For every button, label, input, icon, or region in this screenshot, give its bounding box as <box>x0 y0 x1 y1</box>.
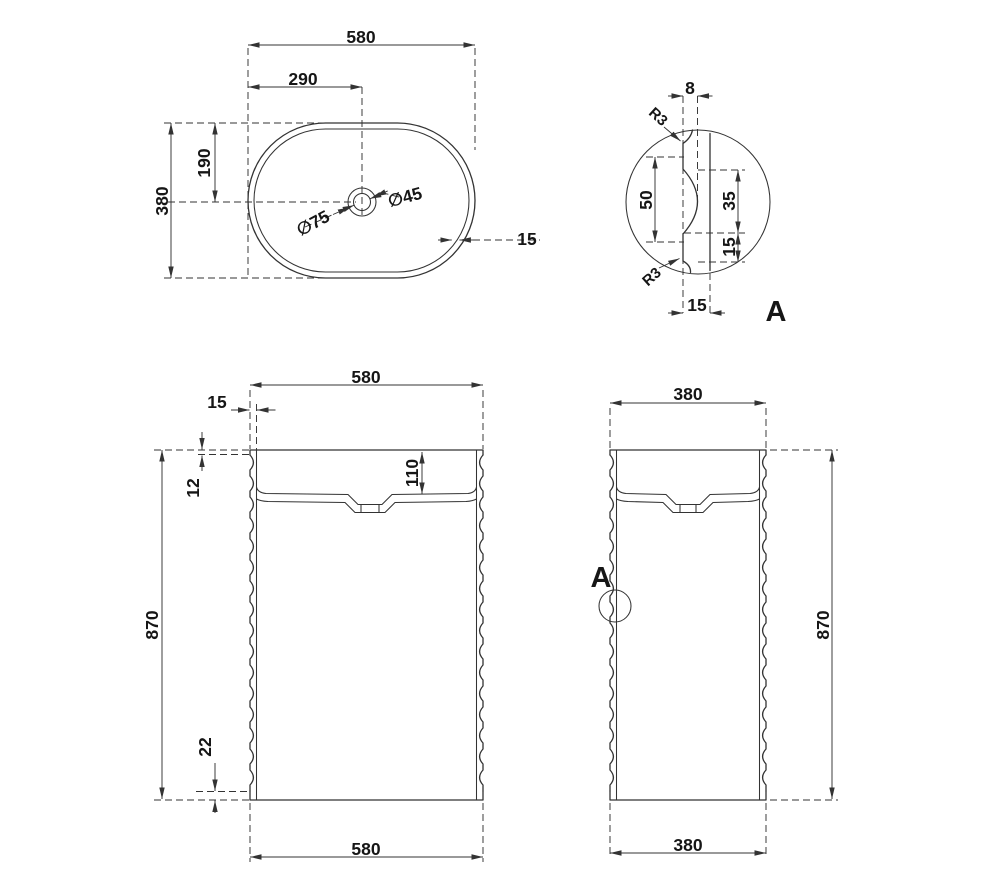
front-drain-socket <box>361 505 379 513</box>
front-basin-depth-dim: 110 <box>402 459 422 487</box>
detail-fillet-top-dim: R3 <box>645 104 671 129</box>
side-detail-marker-label: A <box>591 562 612 594</box>
side-body-outline <box>610 450 766 800</box>
top-view-depth-dim: 380 <box>152 186 172 215</box>
detail-title-label: A <box>766 296 787 328</box>
fillet-top-leader <box>664 127 681 141</box>
front-width-top-dim: 580 <box>351 367 380 387</box>
detail-groove-depth-dim: 8 <box>685 78 695 98</box>
front-basin-shell <box>257 499 477 513</box>
side-extension-lines <box>610 408 838 858</box>
front-view: 580 15 12 110 870 22 580 <box>142 367 483 862</box>
detail-a-view: 8 R3 R3 50 35 15 15 A <box>626 78 787 328</box>
side-depth-bottom-dim: 380 <box>673 835 702 855</box>
top-view-width-dim: 580 <box>346 27 375 47</box>
detail-groove-height-dim: 35 <box>719 191 739 211</box>
front-right-fluted-edge <box>480 455 483 791</box>
side-basin-shell <box>617 499 760 513</box>
top-view-hole-y-dim: 190 <box>194 148 214 177</box>
technical-drawing-canvas: 580 290 380 190 15 ∅75 ∅45 8 R3 R3 50 35… <box>0 0 1000 894</box>
drain-inner-arrow-left <box>340 205 354 211</box>
drain-inner-arrow-right <box>370 193 384 199</box>
top-view-inner-edge <box>254 129 469 272</box>
front-left-fluted-edge <box>250 455 253 791</box>
front-inner-edge-lines <box>257 450 477 800</box>
side-detail-marker-circle <box>599 590 631 622</box>
front-wall-dim: 15 <box>207 392 227 412</box>
front-height-dim: 870 <box>142 610 162 639</box>
front-base-clearance-dim: 22 <box>195 737 215 757</box>
side-inner-edge-lines <box>617 450 760 800</box>
detail-groove-pitch-dim: 50 <box>636 190 656 210</box>
detail-wall-thickness-dim: 15 <box>687 295 707 315</box>
top-view-hole-x-dim: 290 <box>288 69 317 89</box>
detail-fillet-bottom-dim: R3 <box>639 264 665 289</box>
front-rim-height-dim: 12 <box>183 478 203 498</box>
front-body-outline <box>250 450 483 800</box>
side-right-fluted-edge <box>763 455 766 791</box>
top-view-outer-edge <box>248 123 475 278</box>
drawing-sheet: 580 290 380 190 15 ∅75 ∅45 8 R3 R3 50 35… <box>0 0 1000 894</box>
fillet-bottom-leader <box>659 259 680 269</box>
detail-flute-profile <box>683 130 698 273</box>
front-width-bottom-dim: 580 <box>351 839 380 859</box>
side-height-dim: 870 <box>813 610 833 639</box>
side-depth-top-dim: 380 <box>673 384 702 404</box>
side-left-fluted-edge <box>610 455 613 791</box>
drain-inner-dia-label: ∅45 <box>386 183 425 211</box>
side-view: 380 380 870 A <box>591 384 838 858</box>
top-view-extension-lines <box>164 48 540 278</box>
top-view-rim-wall-dim: 15 <box>517 229 537 249</box>
top-view-plan: 580 290 380 190 15 ∅75 ∅45 <box>152 27 540 278</box>
front-extension-lines <box>154 390 483 862</box>
side-drain-socket <box>680 505 696 513</box>
drain-outer-dia-label: ∅75 <box>293 206 333 240</box>
detail-flat-height-dim: 15 <box>719 237 739 257</box>
